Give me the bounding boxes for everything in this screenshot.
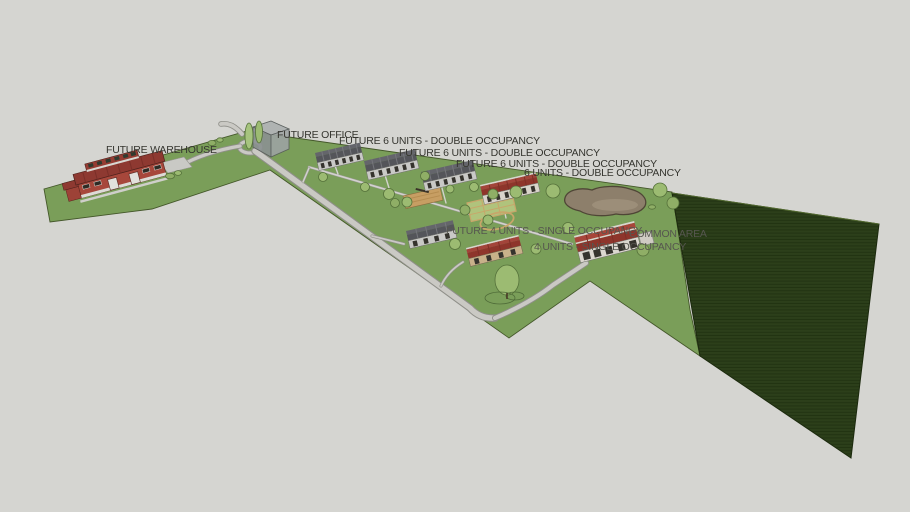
label-future-warehouse: FUTURE WAREHOUSE [106, 145, 217, 156]
label-4-units: 4 UNITS - SINGLE OCCUPANCY [534, 242, 686, 253]
label-common-area: COMMON AREA [629, 229, 707, 240]
label-future-6-units-2: FUTURE 6 UNITS - DOUBLE OCCUPANCY [399, 148, 600, 159]
label-future-4-units: FUTURE 4 UNITS - SINGLE OCCUPANCY [446, 226, 642, 237]
3d-viewport[interactable]: FUTURE WAREHOUSE FUTURE OFFICE FUTURE 6 … [0, 0, 910, 512]
label-future-6-units-1: FUTURE 6 UNITS - DOUBLE OCCUPANCY [339, 136, 540, 147]
label-6-units: 6 UNITS - DOUBLE OCCUPANCY [524, 168, 681, 179]
site-model [0, 0, 910, 512]
